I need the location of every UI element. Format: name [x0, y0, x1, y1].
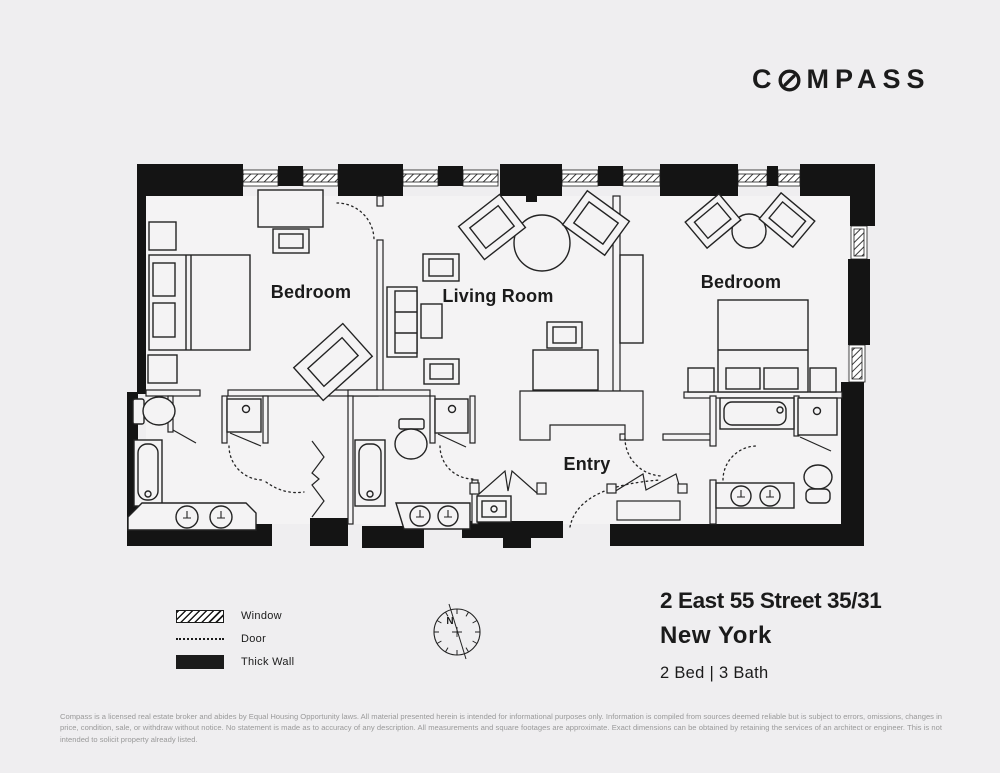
north-label: N	[446, 616, 453, 627]
legend-label-thick-wall: Thick Wall	[241, 656, 294, 668]
compass-rose	[434, 604, 480, 659]
double-vanity	[716, 483, 794, 508]
vanity	[227, 399, 261, 432]
wardrobe	[620, 255, 643, 343]
pillow	[153, 263, 175, 296]
door-dotted-icon	[176, 638, 224, 640]
pillow	[764, 368, 798, 389]
legend-row-door: Door	[176, 632, 294, 646]
desk	[533, 350, 598, 390]
disclaimer-text: Compass is a licensed real estate broker…	[60, 711, 942, 745]
nightstand	[688, 368, 714, 392]
window-hatch-icon	[176, 610, 224, 623]
nightstand	[148, 355, 177, 383]
toilet-base	[806, 489, 830, 503]
room-label-bedroom-left: Bedroom	[271, 282, 351, 302]
legend-row-thick-wall: Thick Wall	[176, 655, 294, 669]
vanity	[435, 399, 468, 433]
listing-address: 2 East 55 Street 35/31	[660, 590, 881, 613]
toilet	[804, 465, 832, 489]
pillow	[726, 368, 760, 389]
toilet	[143, 397, 175, 425]
floor-plan-page: { "colors": {"background": "#efeef0", "i…	[0, 0, 1000, 773]
coffee-table	[421, 304, 442, 338]
pillow	[153, 303, 175, 337]
plan-legend: Window Door Thick Wall	[176, 609, 294, 678]
toilet-tank	[399, 419, 424, 429]
dresser	[258, 190, 323, 227]
room-label-living-room: Living Room	[442, 286, 553, 306]
double-vanity	[396, 503, 470, 529]
vanity	[798, 398, 837, 435]
nightstand	[810, 368, 836, 392]
legend-label-door: Door	[241, 633, 266, 645]
nightstand	[149, 222, 176, 250]
room-label-bedroom-right: Bedroom	[701, 272, 781, 292]
toilet	[395, 429, 427, 459]
listing-beds-baths: 2 Bed | 3 Bath	[660, 665, 881, 682]
legend-label-window: Window	[241, 610, 282, 622]
room-label-entry: Entry	[563, 454, 610, 474]
listing-city: New York	[660, 624, 881, 648]
closet-shelf	[617, 501, 680, 520]
thick-wall-icon	[176, 655, 224, 669]
listing-title-block: 2 East 55 Street 35/31 New York 2 Bed | …	[660, 590, 881, 681]
legend-row-window: Window	[176, 609, 294, 623]
